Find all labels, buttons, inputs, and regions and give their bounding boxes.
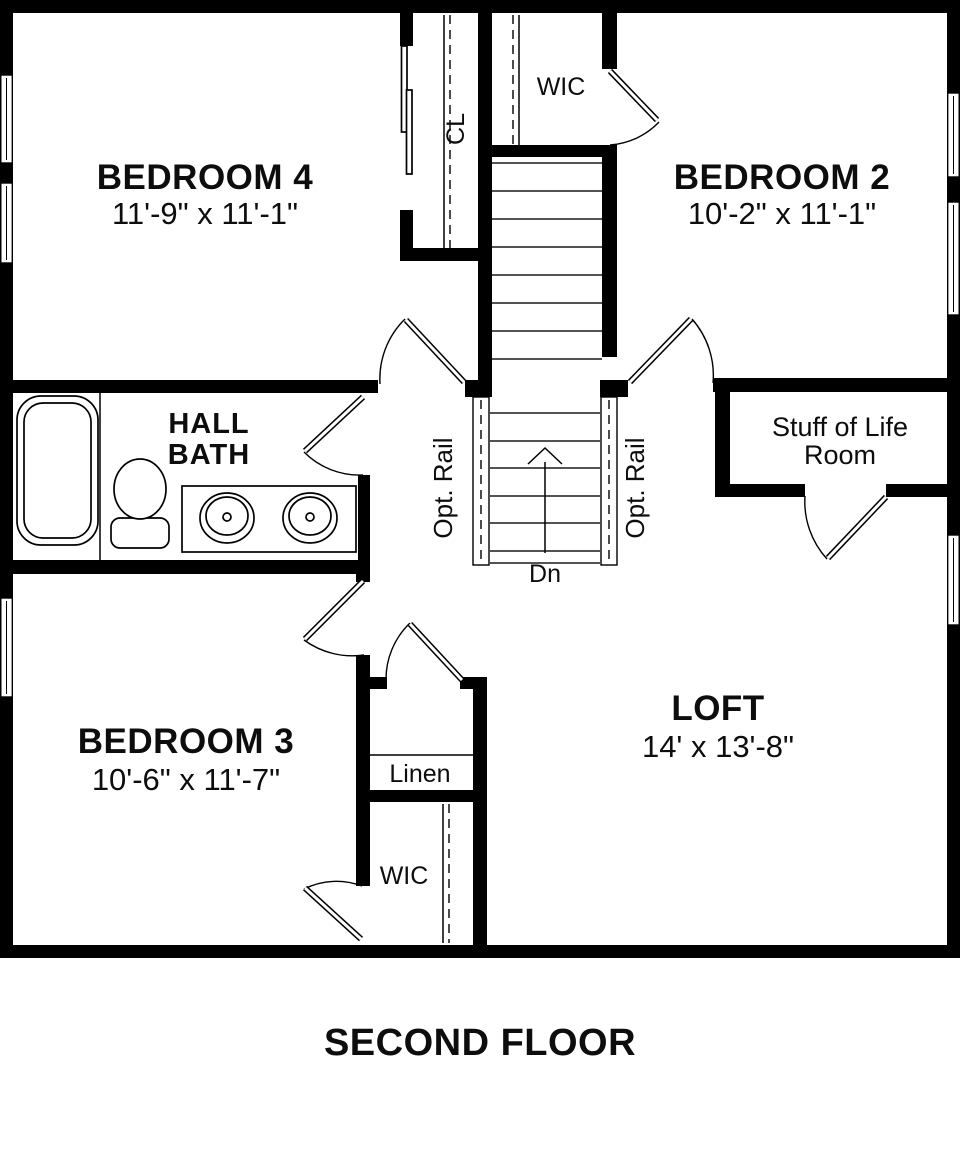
stairs-down-label: Dn [529, 560, 561, 588]
wic-bottom-label: WIC [380, 862, 429, 890]
wic-bottom-rod [443, 804, 449, 943]
stair-rail-right [601, 397, 617, 565]
stair-rail-left [473, 397, 489, 565]
stair-treads-upper [492, 163, 602, 359]
sink-left [200, 493, 254, 543]
linen-label: Linen [389, 760, 450, 788]
window-bedroom4-upper [1, 75, 13, 163]
loft-label: LOFT [671, 689, 764, 728]
opt-rail-left-label: Opt. Rail [428, 437, 458, 538]
bedroom3-door [304, 581, 364, 656]
wic-top-label: WIC [537, 73, 586, 101]
staircase [473, 163, 617, 565]
bedroom4-door [380, 319, 464, 384]
window-bedroom2-upper [948, 93, 960, 177]
bathtub [17, 393, 100, 560]
second-floor-plan: BEDROOM 4 11'-9" x 11'-1" BEDROOM 2 10'-… [0, 0, 960, 1173]
window-bedroom2-lower [948, 202, 960, 315]
bedroom2-label: BEDROOM 2 [674, 158, 890, 197]
hall-bath-label-line1: HALL [168, 408, 249, 440]
window-bedroom4-lower [1, 183, 13, 263]
hall-bath-door [304, 397, 363, 475]
wic-bottom-door [304, 881, 362, 939]
opt-rail-right-label: Opt. Rail [620, 437, 650, 538]
hall-bath-label-line2: BATH [168, 439, 250, 471]
closet-bypass-doors [402, 46, 413, 174]
linen-door [386, 623, 462, 681]
sink-right [283, 493, 337, 543]
stuff-of-life-label-line2: Room [804, 440, 876, 470]
bedroom4-label: BEDROOM 4 [97, 158, 314, 197]
window-loft [948, 535, 960, 625]
wic-top-door [610, 71, 659, 145]
floor-plan-page: BEDROOM 4 11'-9" x 11'-1" BEDROOM 2 10'-… [0, 0, 960, 1173]
bedroom3-dims: 10'-6" x 11'-7" [92, 762, 280, 797]
plan-title: SECOND FLOOR [324, 1022, 636, 1064]
window-bedroom3 [1, 598, 13, 697]
vanity [182, 486, 356, 552]
wic-top-rod [513, 15, 519, 145]
bedroom3-label: BEDROOM 3 [78, 722, 294, 761]
bedroom2-door [630, 319, 713, 383]
toilet [111, 459, 169, 548]
stair-direction-arrow [528, 448, 562, 553]
stuff-of-life-door [805, 496, 886, 559]
stuff-of-life-label-line1: Stuff of Life [772, 412, 908, 442]
bedroom4-dims: 11'-9" x 11'-1" [112, 196, 298, 231]
loft-dims: 14' x 13'-8" [642, 729, 794, 764]
closet-cl-label: CL [442, 113, 470, 145]
bedroom2-dims: 10'-2" x 11'-1" [688, 196, 876, 231]
